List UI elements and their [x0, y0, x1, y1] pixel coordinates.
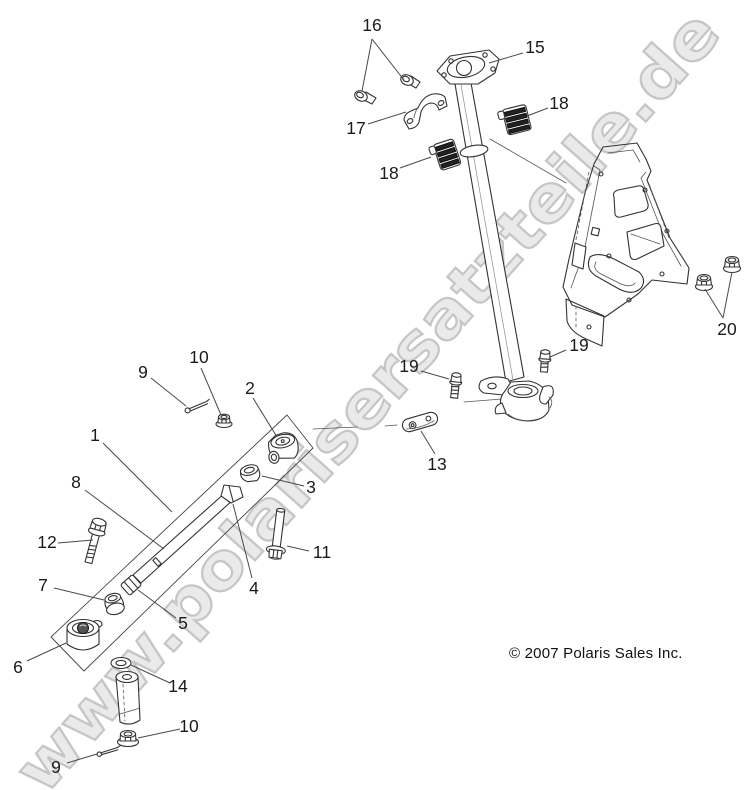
callout-label-5-jam-nut: 5 — [178, 613, 188, 633]
callout-label-11-hex-bolt: 11 — [313, 542, 331, 562]
callout-label-3-rod-end: 3 — [306, 477, 316, 497]
part-nut-10-lower — [118, 731, 139, 747]
callout-label-20-flange-nut: 20 — [717, 319, 737, 339]
callout-label-10-flange-nut: 10 — [189, 347, 209, 367]
leader-line-tie-rod-assembly — [103, 443, 172, 512]
callout-label-18-post-bushing: 18 — [549, 93, 568, 113]
leader-line-flange-nut — [201, 368, 221, 415]
callout-label-19-pinch-bolt: 19 — [399, 356, 418, 376]
part-nut-20-a — [724, 257, 741, 273]
part-bolt-19-left — [448, 372, 463, 398]
leader-line-post-bushing — [527, 108, 548, 116]
callout-label-9-cotter-pin: 9 — [138, 362, 148, 382]
callout-label-14-washer: 14 — [168, 676, 188, 696]
callout-label-10-flange-nut: 10 — [179, 716, 199, 736]
leader-line-flange-bolt — [362, 39, 372, 91]
leader-line-hex-flange-bolt — [58, 540, 93, 543]
part-rod-end-7 — [103, 592, 126, 617]
part-spacer-tube — [116, 672, 140, 725]
leader-line-flange-nut — [138, 729, 180, 738]
callout-label-15-steering-post: 15 — [525, 37, 544, 57]
part-nut-10-upper — [216, 414, 232, 427]
part-cotter-pin-upper — [184, 399, 211, 413]
leader-line-flange-bolt — [372, 39, 404, 80]
part-bushing-18-right — [497, 104, 531, 136]
callout-label-12-hex-flange-bolt: 12 — [37, 532, 56, 552]
callout-label-18-post-bushing: 18 — [379, 163, 398, 183]
part-bolt-19-right — [538, 349, 552, 372]
leader-line-post-clamp — [368, 112, 406, 124]
callout-label-13-link-plate: 13 — [427, 454, 446, 474]
callout-label-8-tie-rod-tube: 8 — [71, 472, 81, 492]
part-nut-20-b — [696, 275, 713, 291]
leader-line-pinch-bolt — [550, 350, 566, 357]
callout-label-19-pinch-bolt: 19 — [569, 335, 588, 355]
callout-label-1-tie-rod-assembly: 1 — [90, 425, 100, 445]
leader-line-hex-bolt — [287, 546, 309, 551]
part-bushing-18-left — [428, 139, 461, 173]
callout-label-7-outer-rod-end: 7 — [38, 575, 48, 595]
part-steering-housing — [479, 377, 553, 421]
callout-label-2-ball-joint: 2 — [245, 378, 255, 398]
exploded-diagram: www.polarisersatzteile.de — [0, 0, 752, 790]
part-washer-14 — [111, 658, 131, 669]
part-bolt-16-left — [353, 89, 376, 104]
callout-label-4-inner-tie-rod: 4 — [249, 578, 259, 598]
callout-label-6-pivot-bushing: 6 — [13, 657, 23, 677]
part-clamp — [404, 94, 447, 129]
leader-line-flange-nut — [705, 289, 723, 318]
leader-line-ball-joint — [253, 398, 277, 437]
leader-line-link-plate — [421, 431, 435, 454]
leader-line-flange-nut — [723, 272, 732, 318]
part-bushing-6 — [67, 620, 102, 651]
callout-label-17-post-clamp: 17 — [346, 118, 365, 138]
callout-label-16-flange-bolt: 16 — [362, 15, 381, 35]
parts-diagram-page: www.polarisersatzteile.de — [0, 0, 752, 790]
leader-line-post-bushing — [400, 157, 431, 168]
leader-line-pivot-bushing — [27, 643, 66, 661]
part-bolt-16-right — [399, 73, 420, 88]
leader-line-cotter-pin — [151, 378, 186, 406]
watermark-text: www.polarisersatzteile.de — [1, 0, 735, 790]
callout-label-9-cotter-pin: 9 — [51, 757, 61, 777]
copyright-notice: © 2007 Polaris Sales Inc. — [509, 645, 683, 662]
